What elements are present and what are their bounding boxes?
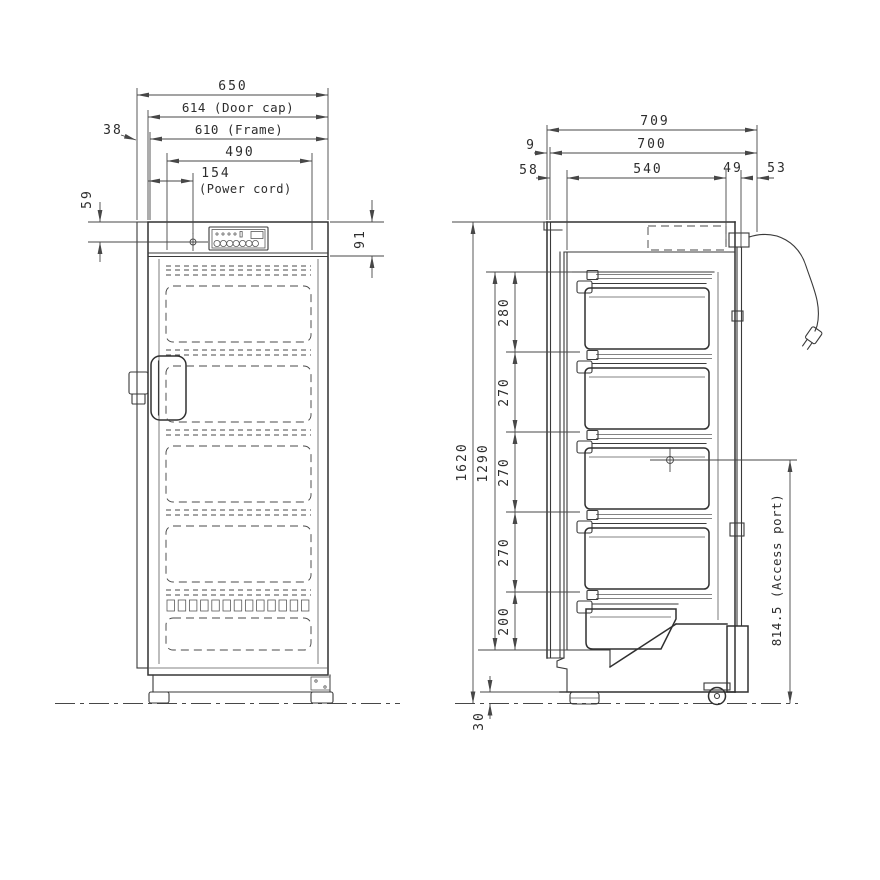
power-cord — [749, 234, 818, 331]
dim-control-panel-height: 91 — [353, 229, 368, 249]
front-view — [129, 222, 333, 703]
dim-depth-overall: 709 — [640, 114, 669, 129]
technical-drawing: 650 614 (Door cap) 610 (Frame) 490 154 (… — [0, 0, 880, 880]
dim-access-port-height: 814.5 (Access port) — [769, 494, 784, 647]
dim-rear-clearance: 53 — [767, 161, 787, 176]
drawing-page: 650 614 (Door cap) 610 (Frame) 490 154 (… — [0, 0, 880, 880]
front-base-feet — [148, 675, 333, 703]
dim-front-inner-width: 490 — [225, 145, 254, 160]
front-hidden-baskets — [166, 266, 311, 650]
front-cabinet-outline — [137, 222, 328, 675]
dim-ground-clearance: 30 — [472, 711, 487, 731]
dim-door-thickness: 58 — [519, 163, 539, 178]
side-rear-rail — [730, 247, 744, 625]
dim-basket-pitch-1: 280 — [497, 297, 512, 326]
dim-height-interior: 1290 — [476, 443, 491, 482]
power-outlet — [729, 233, 749, 247]
dim-hinge-clearance: 38 — [103, 123, 123, 138]
side-power-cord — [729, 233, 823, 351]
power-plug — [800, 326, 822, 351]
dim-power-cord-offset: 154 — [201, 166, 230, 181]
dim-basket-pitch-3: 270 — [497, 457, 512, 486]
dim-rear-gap: 49 — [723, 161, 743, 176]
dim-basket-pitch-2: 270 — [497, 377, 512, 406]
side-dimensions: 709 700 540 9 58 49 53 1620 1290 280 270… — [452, 114, 797, 731]
dim-depth-interior: 540 — [633, 162, 662, 177]
dim-door-lip: 9 — [526, 138, 536, 153]
dim-front-frame: 610 (Frame) — [195, 122, 283, 137]
dim-basket-pitch-5: 200 — [497, 606, 512, 635]
dim-basket-pitch-4: 270 — [497, 537, 512, 566]
front-vent-slots — [167, 600, 309, 611]
dim-height-overall: 1620 — [455, 442, 470, 481]
dim-front-width-overall: 650 — [218, 79, 247, 94]
dim-front-door-cap: 614 (Door cap) — [182, 100, 294, 115]
side-access-port-marker — [650, 448, 690, 472]
dim-power-cord-drop: 59 — [80, 189, 95, 209]
front-control-panel — [209, 227, 268, 250]
dim-power-cord-note: (Power cord) — [199, 182, 292, 196]
side-bottom-basket — [577, 591, 712, 650]
dim-depth-body: 700 — [637, 137, 666, 152]
